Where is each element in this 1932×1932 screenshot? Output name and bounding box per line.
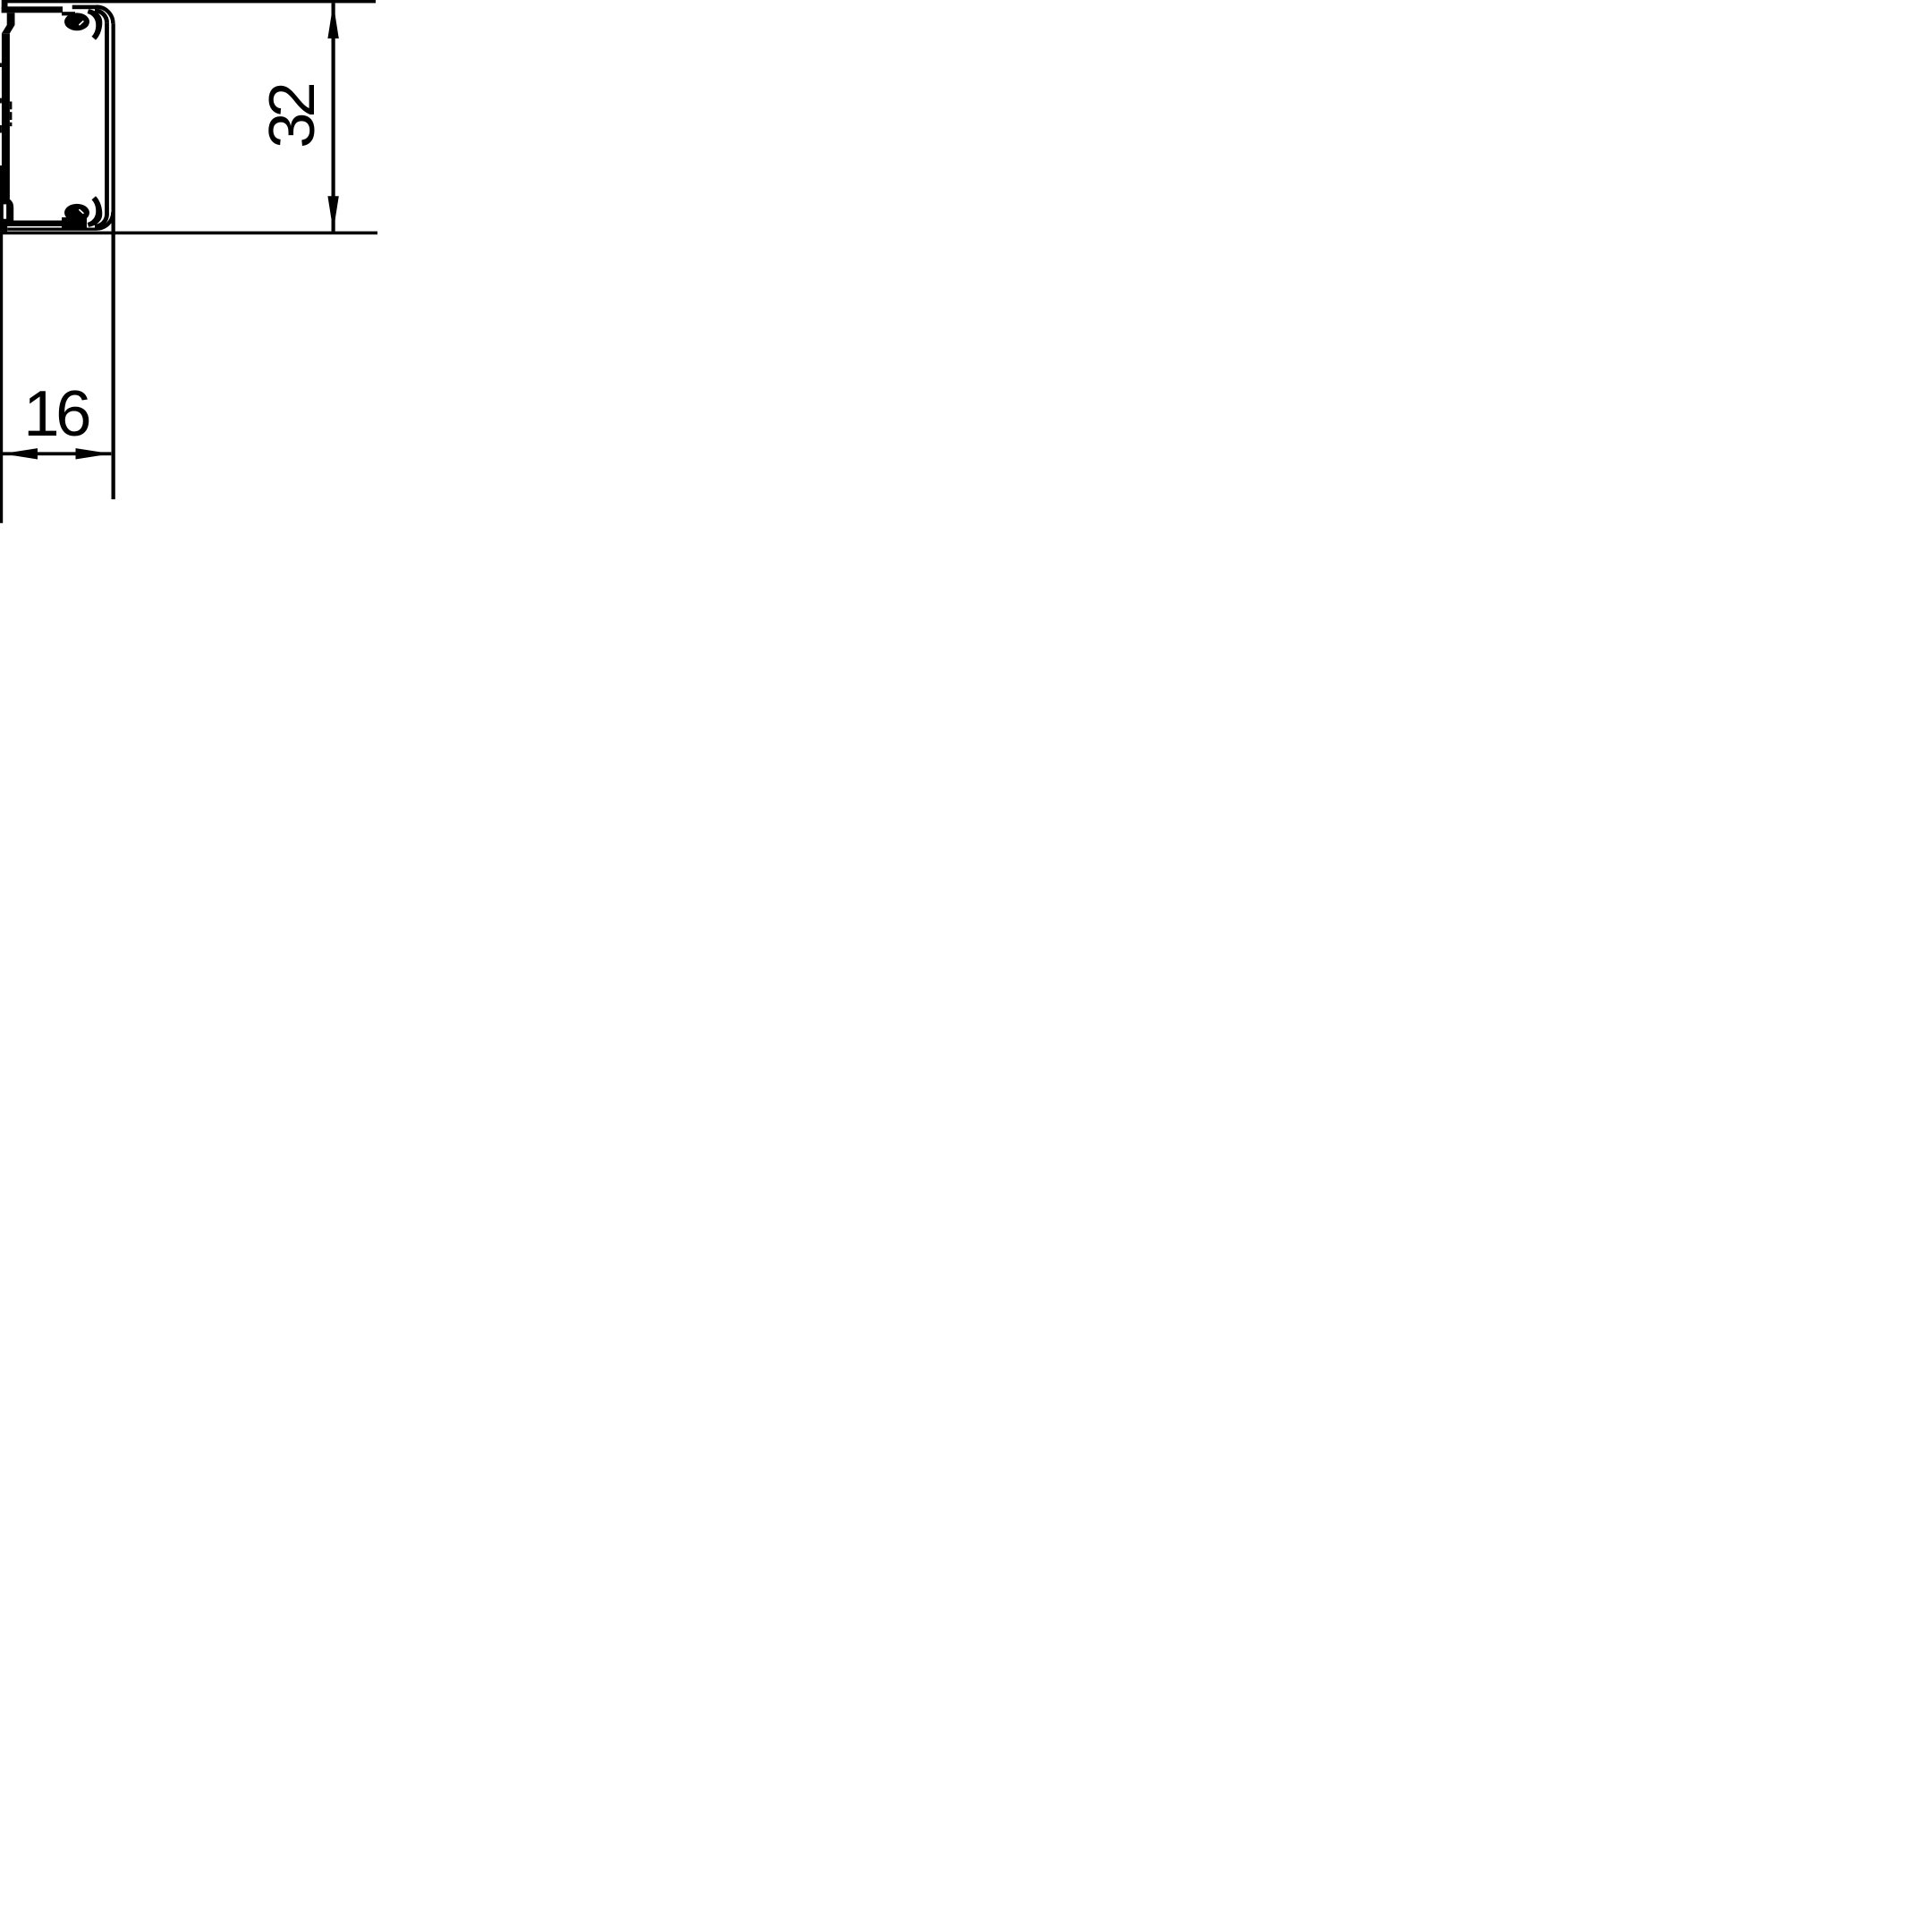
svg-text:32: 32 <box>256 85 328 148</box>
svg-text:16: 16 <box>23 377 89 450</box>
